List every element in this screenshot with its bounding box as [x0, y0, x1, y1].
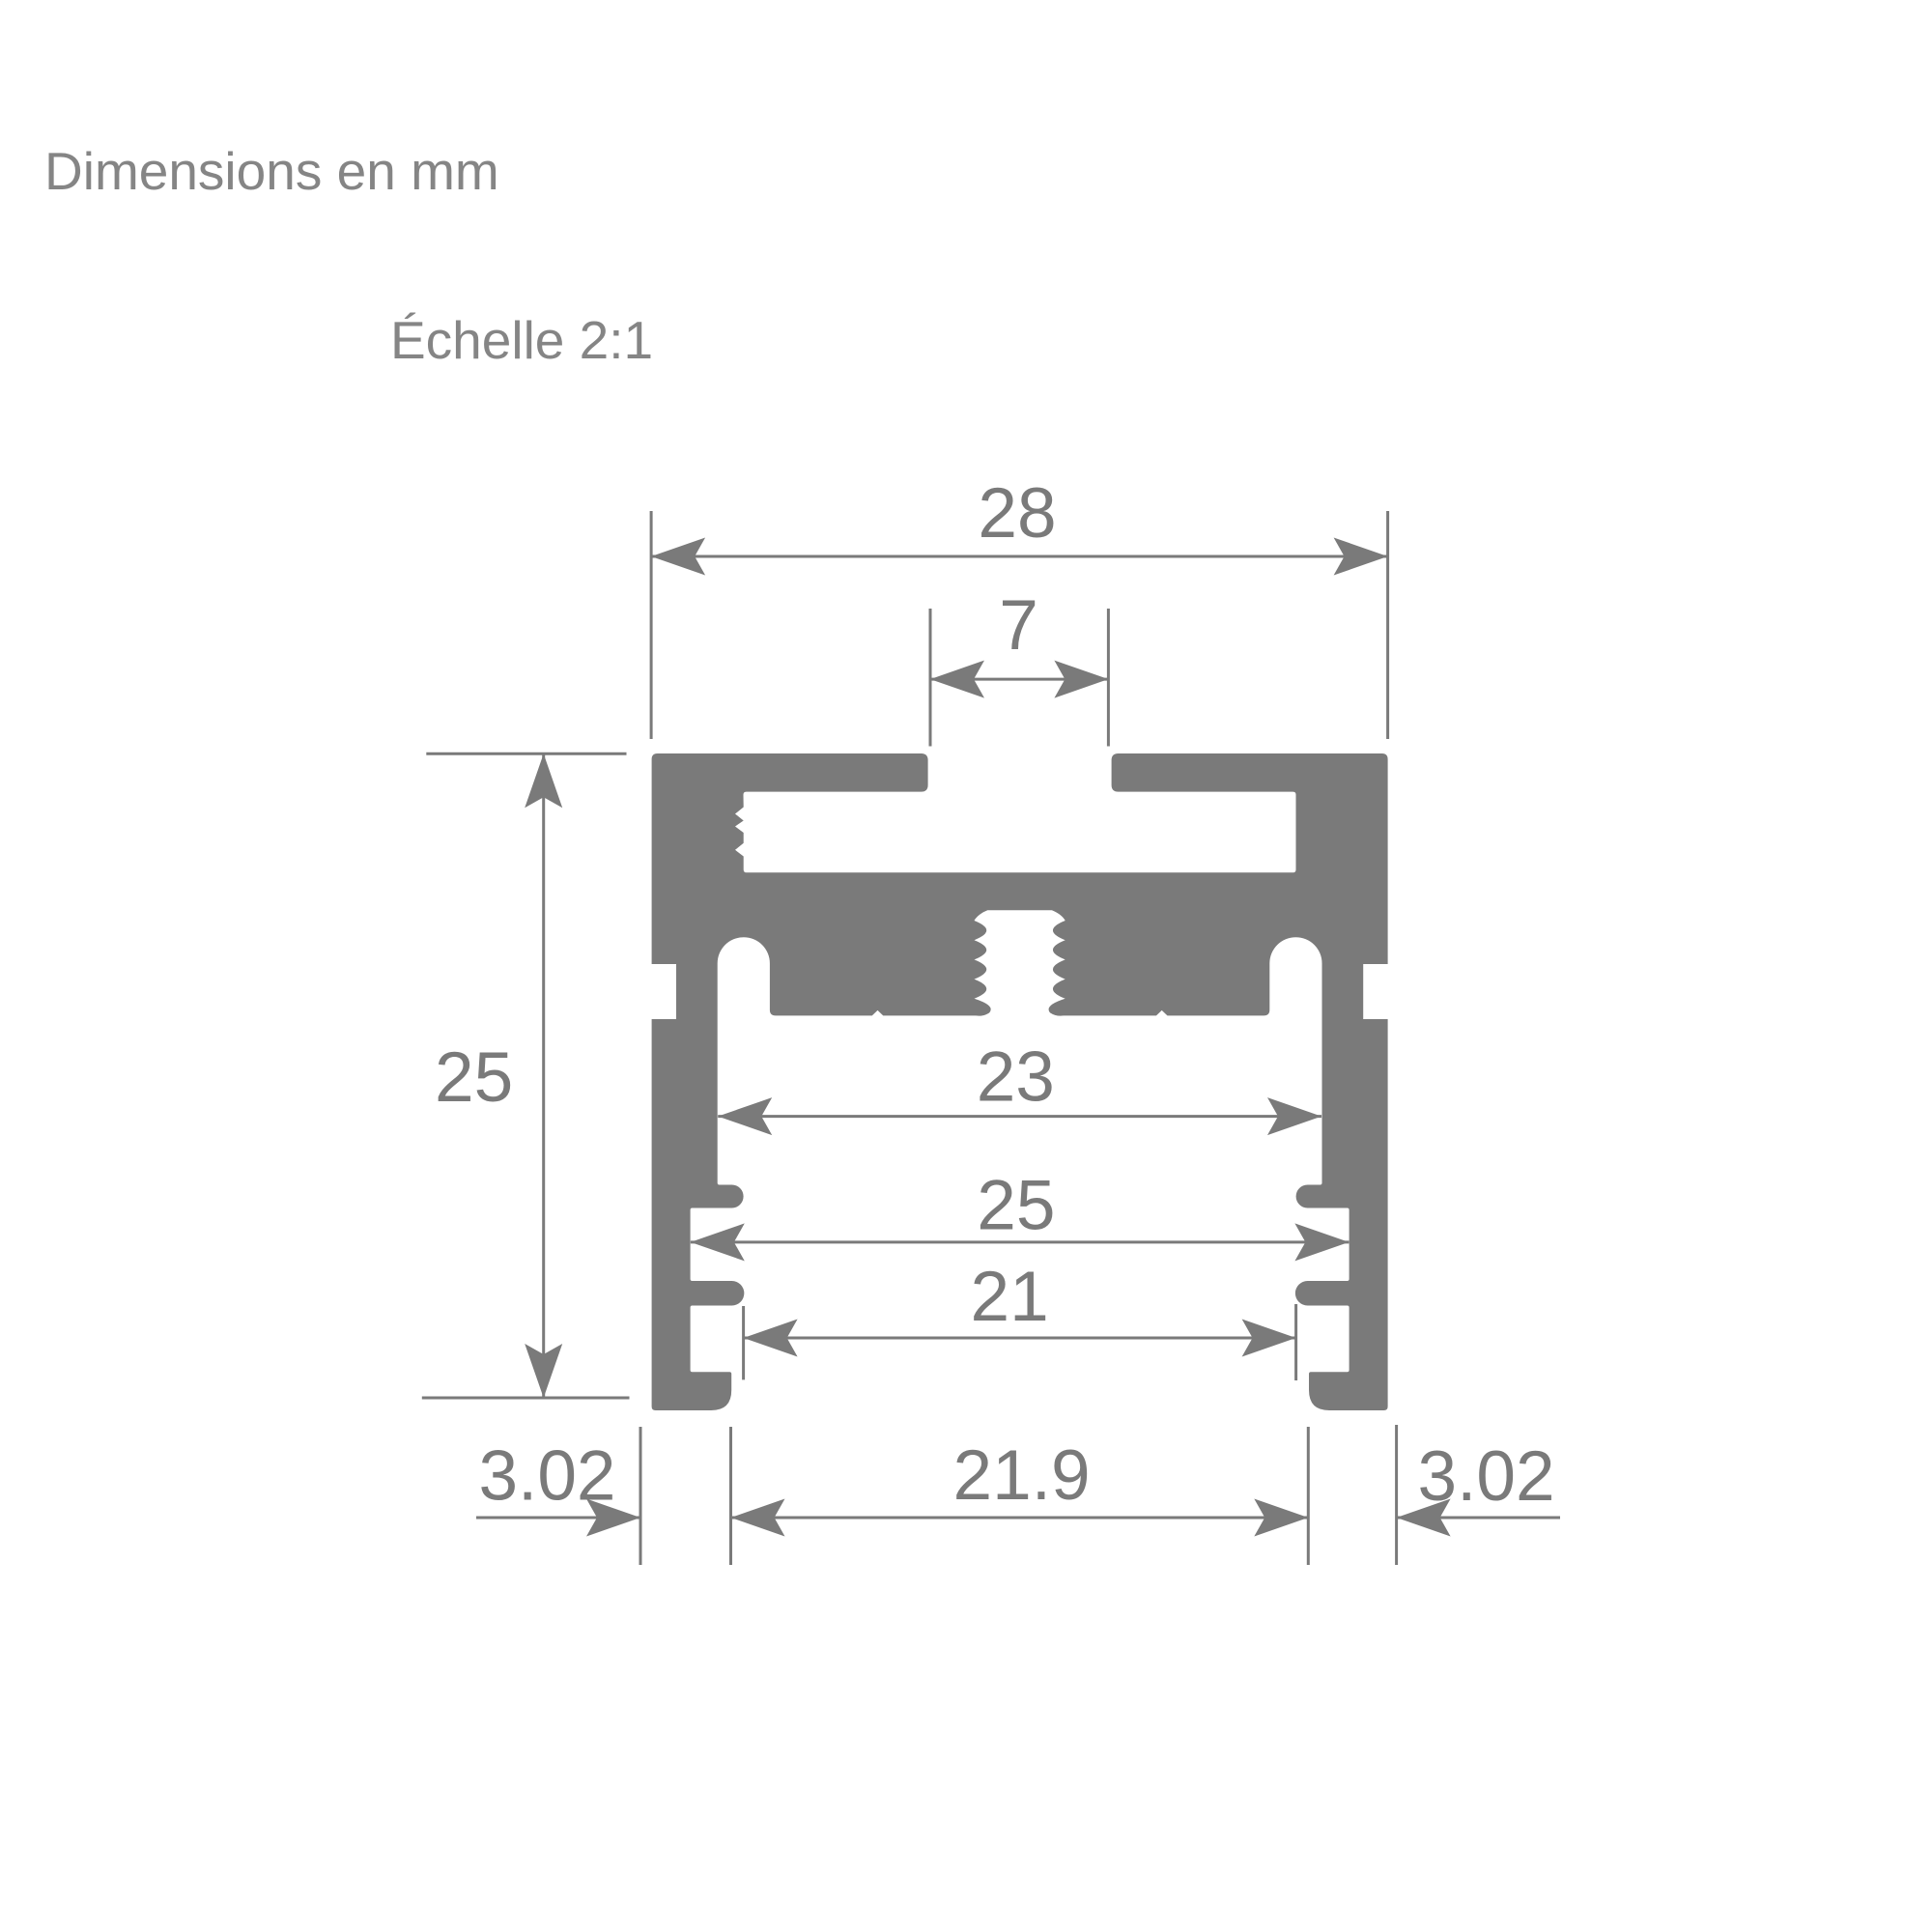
- svg-text:Dimensions en mm: Dimensions en mm: [44, 141, 499, 201]
- svg-text:28: 28: [978, 474, 1056, 553]
- svg-text:Échelle 2:1: Échelle 2:1: [390, 310, 653, 370]
- svg-text:23: 23: [977, 1038, 1055, 1117]
- svg-text:21.9: 21.9: [953, 1436, 1091, 1515]
- svg-text:25: 25: [435, 1038, 513, 1117]
- svg-text:7: 7: [999, 586, 1038, 665]
- svg-text:3.02: 3.02: [478, 1437, 615, 1516]
- svg-text:25: 25: [977, 1166, 1055, 1244]
- svg-text:21: 21: [970, 1258, 1048, 1336]
- svg-text:3.02: 3.02: [1418, 1437, 1555, 1516]
